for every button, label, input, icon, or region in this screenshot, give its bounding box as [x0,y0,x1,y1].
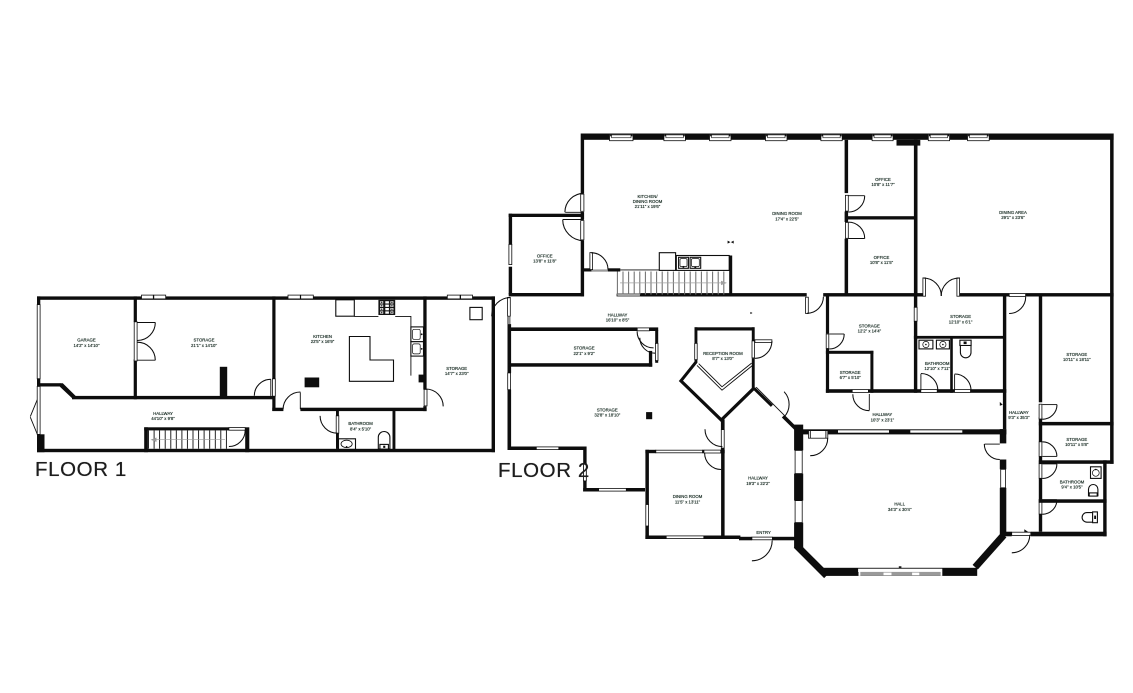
svg-text:12'2" x 14'4": 12'2" x 14'4" [858,329,882,334]
svg-text:ENTRY: ENTRY [756,530,771,535]
svg-text:10'8" x 11'5": 10'8" x 11'5" [870,260,894,265]
svg-text:21'1" x 14'10": 21'1" x 14'10" [191,343,217,348]
svg-text:14'7" x 23'0": 14'7" x 23'0" [445,371,469,376]
svg-text:21'11" x 19'6": 21'11" x 19'6" [635,204,661,209]
svg-text:8'7" x 13'0": 8'7" x 13'0" [712,356,734,361]
svg-text:22'1" x 9'2": 22'1" x 9'2" [574,351,596,356]
svg-text:12'10" x 7'11": 12'10" x 7'11" [924,366,950,371]
svg-text:11'5" x 13'11": 11'5" x 13'11" [675,499,701,504]
svg-text:9'3" x 35'3": 9'3" x 35'3" [1008,415,1030,420]
svg-text:29'1" x 23'6": 29'1" x 23'6" [1001,215,1025,220]
svg-text:34'3" x 30'4": 34'3" x 30'4" [888,507,912,512]
svg-text:14'2" x 14'10": 14'2" x 14'10" [74,343,100,348]
svg-text:12'10" x 6'1": 12'10" x 6'1" [949,319,973,324]
svg-text:10'11" x 18'11": 10'11" x 18'11" [1063,357,1091,362]
svg-text:6'7" x 5'10": 6'7" x 5'10" [840,375,862,380]
svg-text:10'11" x 5'8": 10'11" x 5'8" [1065,442,1089,447]
svg-text:8'4" x 5'10": 8'4" x 5'10" [350,426,372,431]
svg-text:44'10" x 9'8": 44'10" x 9'8" [151,416,175,421]
svg-text:9'4" x 10'5": 9'4" x 10'5" [1061,485,1083,490]
svg-text:19'3" x 22'2": 19'3" x 22'2" [746,481,770,486]
svg-text:16'10" x 8'5": 16'10" x 8'5" [606,318,630,323]
svg-text:17'4" x 22'5": 17'4" x 22'5" [775,216,799,221]
svg-text:10'3" x 23'1": 10'3" x 23'1" [871,417,895,422]
svg-text:FLOOR 1: FLOOR 1 [35,458,127,481]
svg-text:13'8" x 11'8": 13'8" x 11'8" [533,259,557,264]
svg-text:FLOOR 2: FLOOR 2 [498,459,590,482]
svg-text:10'8" x 11'7": 10'8" x 11'7" [871,182,895,187]
svg-text:32'8" x 18'10": 32'8" x 18'10" [594,413,620,418]
svg-text:22'5" x 16'9": 22'5" x 16'9" [311,339,335,344]
